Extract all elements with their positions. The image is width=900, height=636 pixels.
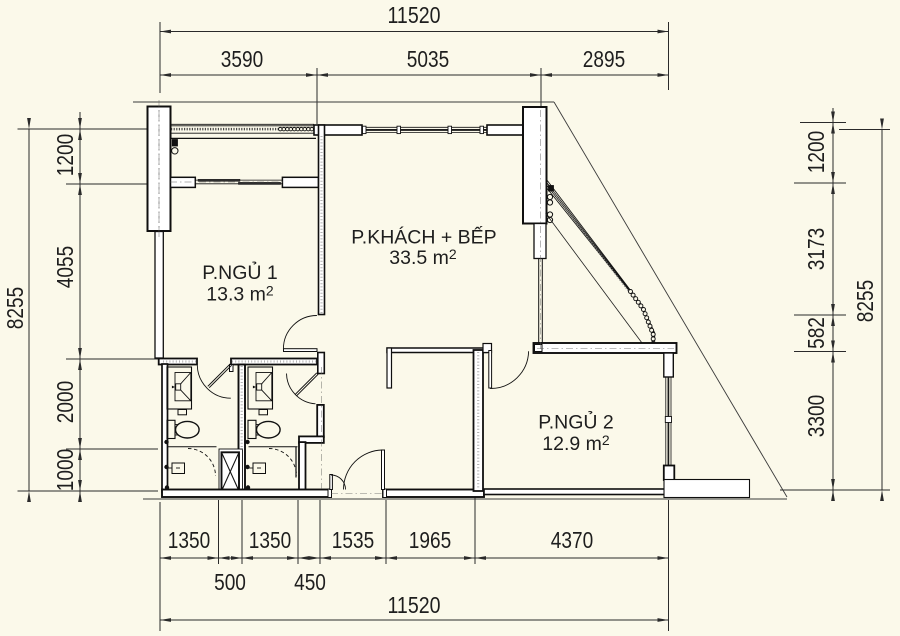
svg-text:P.KHÁCH + BẾP: P.KHÁCH + BẾP: [351, 226, 496, 249]
svg-text:11520: 11520: [388, 2, 441, 28]
svg-text:1350: 1350: [168, 527, 210, 553]
svg-text:582: 582: [803, 317, 829, 349]
svg-text:1965: 1965: [409, 527, 451, 553]
svg-text:P.NGỦ 2: P.NGỦ 2: [538, 410, 614, 434]
svg-text:13.3 m2: 13.3 m2: [206, 283, 274, 306]
svg-text:3173: 3173: [803, 228, 829, 270]
svg-text:12.9 m2: 12.9 m2: [542, 432, 610, 455]
svg-text:33.5 m2: 33.5 m2: [389, 246, 457, 269]
svg-text:5035: 5035: [407, 46, 449, 72]
svg-text:8255: 8255: [2, 287, 28, 329]
svg-text:8255: 8255: [852, 280, 878, 322]
svg-text:1200: 1200: [803, 131, 829, 173]
svg-text:450: 450: [294, 569, 326, 595]
svg-text:1000: 1000: [52, 449, 78, 491]
svg-text:2895: 2895: [583, 46, 625, 72]
svg-text:P.NGỦ 1: P.NGỦ 1: [202, 260, 278, 284]
svg-text:1535: 1535: [332, 527, 374, 553]
svg-text:1350: 1350: [249, 527, 291, 553]
svg-text:4370: 4370: [551, 527, 593, 553]
svg-text:500: 500: [214, 569, 246, 595]
svg-text:3590: 3590: [221, 46, 263, 72]
svg-text:11520: 11520: [388, 592, 441, 618]
svg-text:1200: 1200: [52, 134, 78, 176]
svg-text:3300: 3300: [803, 395, 829, 437]
svg-text:4055: 4055: [52, 246, 78, 288]
svg-text:2000: 2000: [52, 381, 78, 423]
